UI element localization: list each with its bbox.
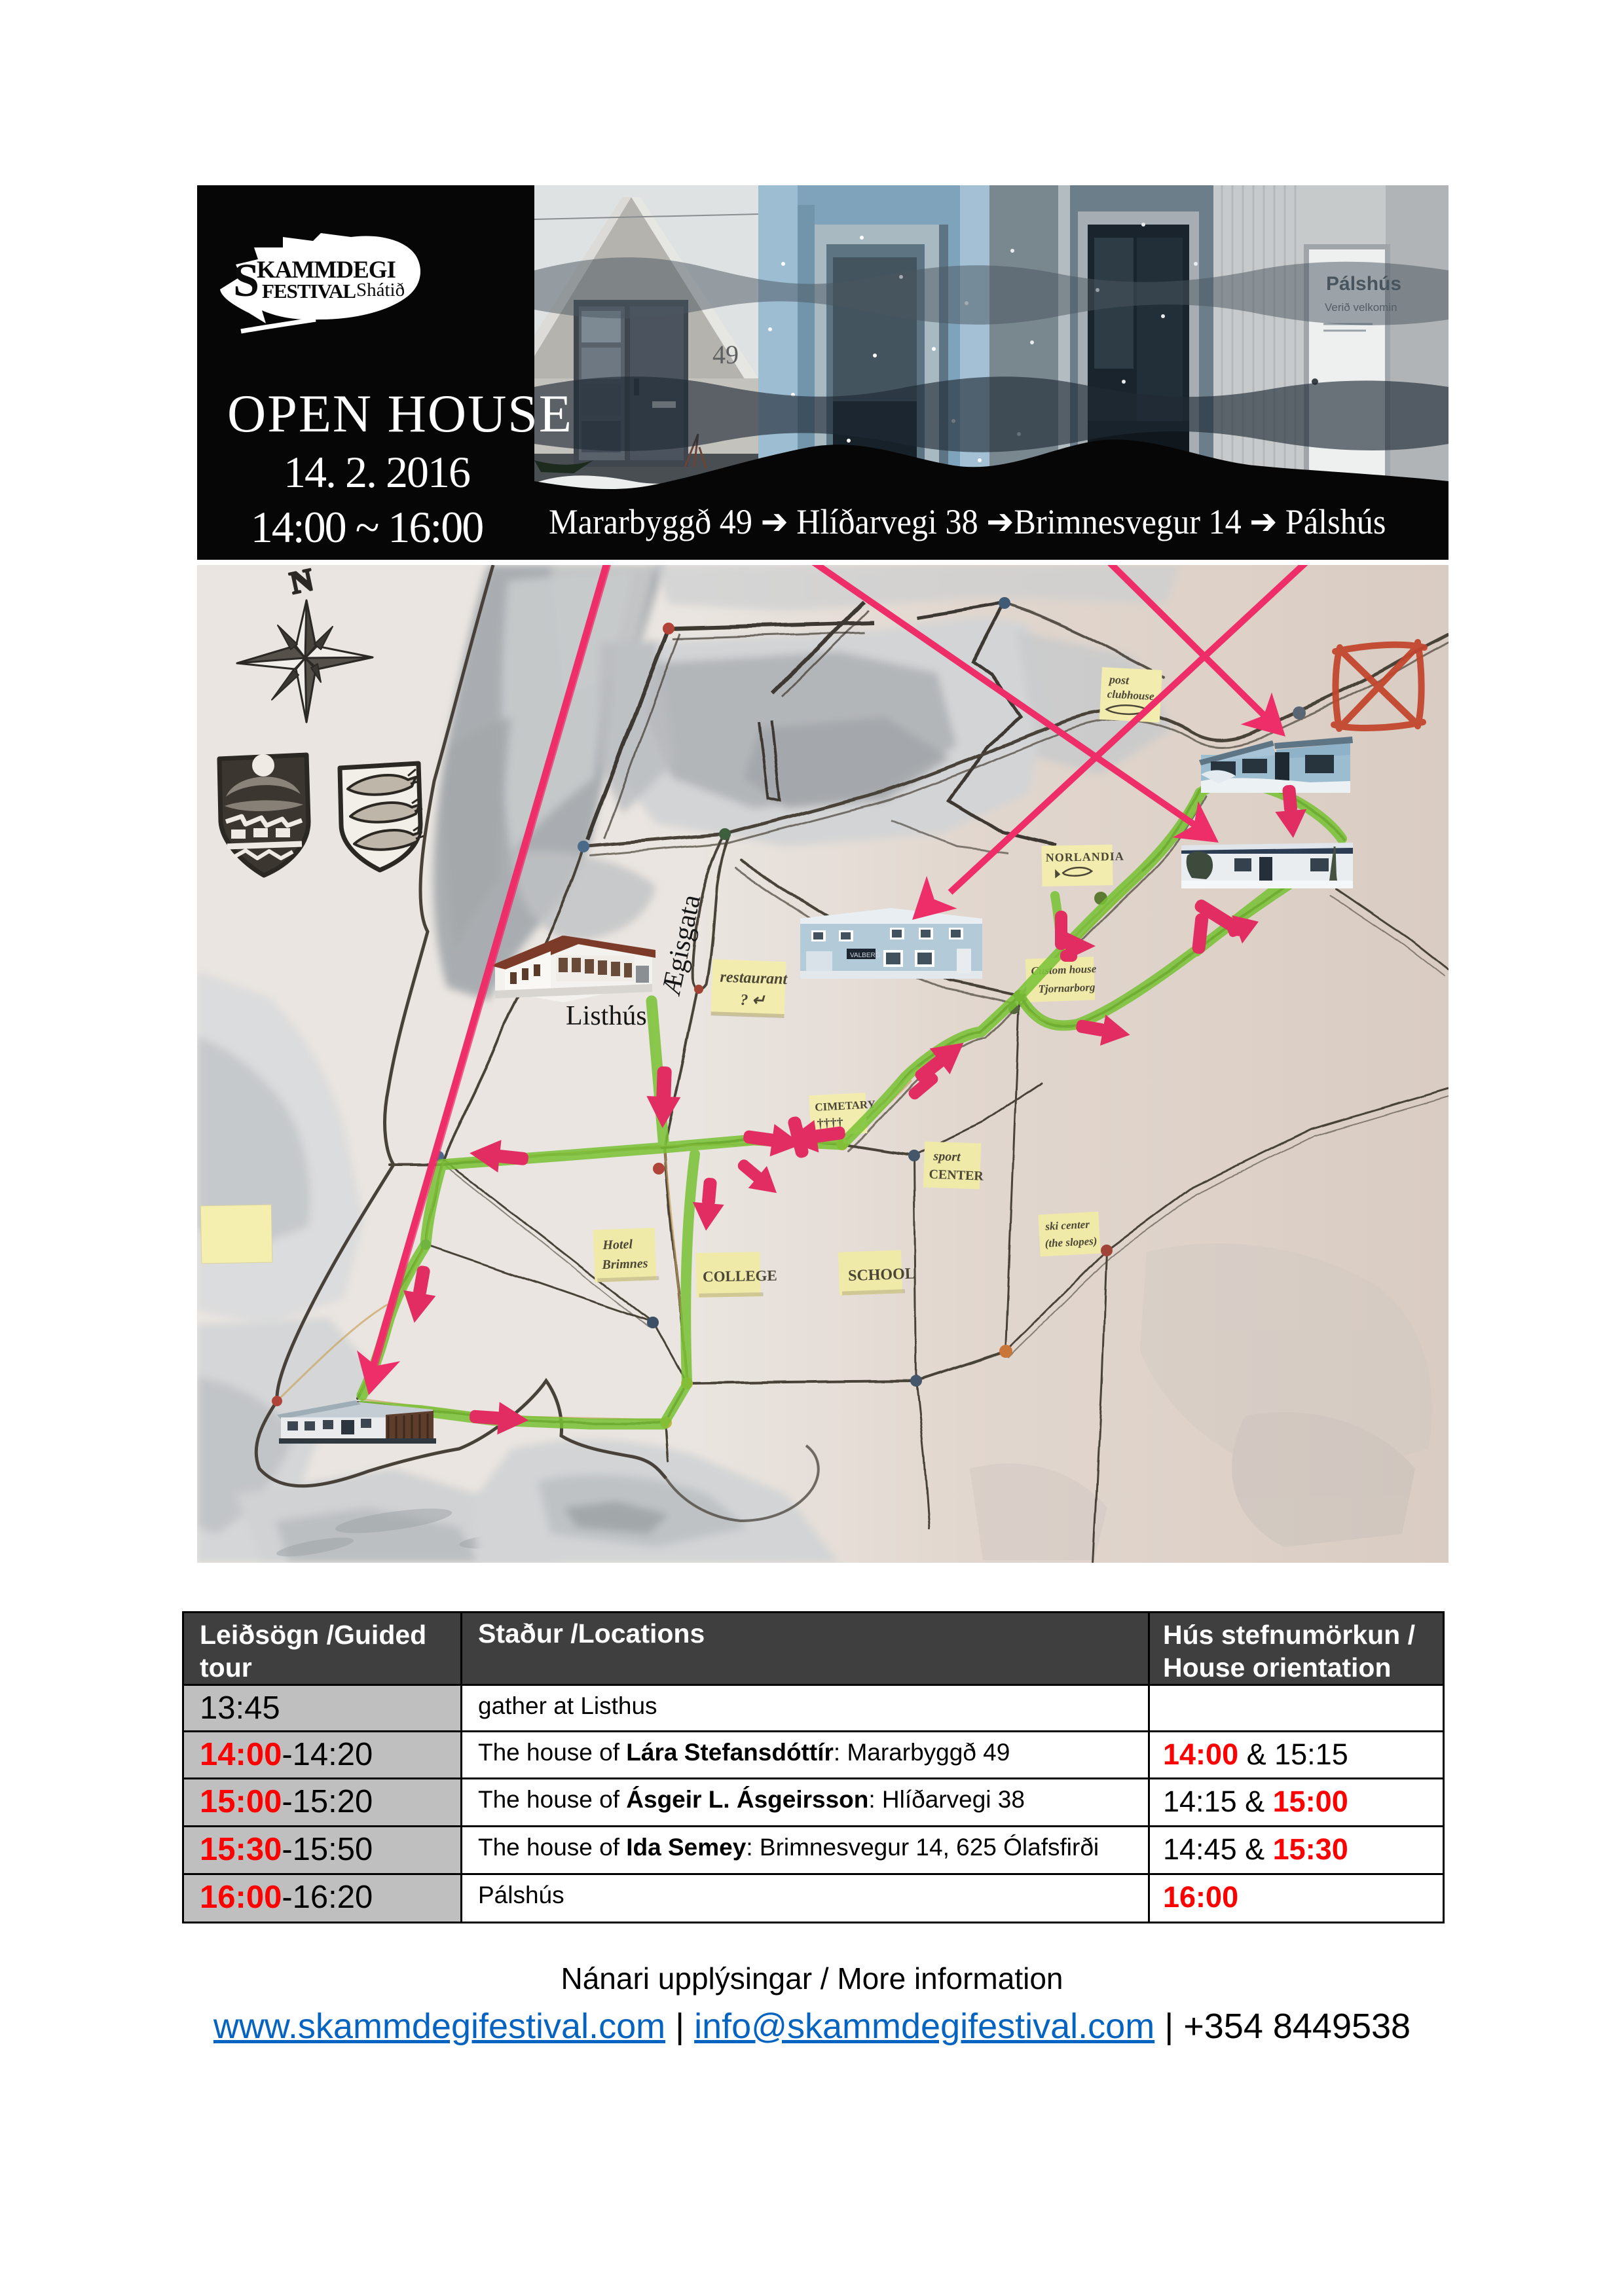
svg-text:? ↵: ? ↵ bbox=[740, 992, 766, 1010]
svg-text:clubhouse: clubhouse bbox=[1107, 687, 1154, 702]
svg-text:Listhús: Listhús bbox=[566, 1001, 647, 1031]
svg-text:Brimnes: Brimnes bbox=[601, 1256, 648, 1272]
svg-text:sport: sport bbox=[932, 1149, 961, 1165]
svg-text:ski center: ski center bbox=[1044, 1218, 1090, 1233]
svg-text:Hotel: Hotel bbox=[602, 1237, 633, 1253]
svg-text:restaurant: restaurant bbox=[720, 969, 788, 989]
svg-text:FESTIVAL: FESTIVAL bbox=[262, 280, 356, 302]
svg-text:NORLANDIA: NORLANDIA bbox=[1046, 850, 1124, 864]
svg-text:S: S bbox=[233, 254, 259, 306]
svg-text:SCHOOL: SCHOOL bbox=[848, 1266, 916, 1285]
svg-text:post: post bbox=[1108, 672, 1130, 687]
svg-text:COLLEGE: COLLEGE bbox=[703, 1267, 777, 1285]
svg-text:Tjornarborg: Tjornarborg bbox=[1038, 981, 1096, 995]
svg-text:VALBERG: VALBERG bbox=[850, 952, 881, 959]
svg-text:CENTER: CENTER bbox=[929, 1167, 984, 1184]
svg-text:49: 49 bbox=[712, 340, 739, 369]
svg-text:Shátið: Shátið bbox=[356, 280, 405, 301]
